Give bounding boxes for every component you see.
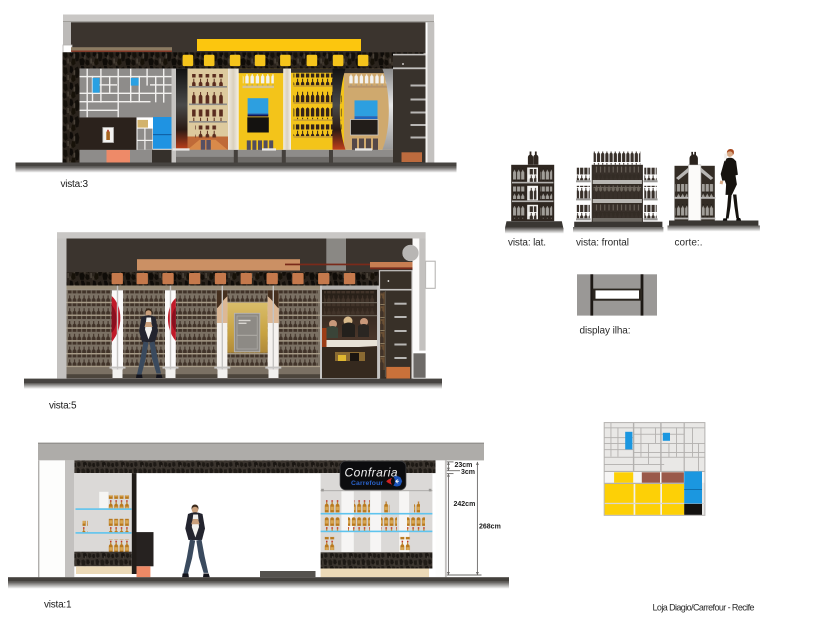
svg-text:vista:3: vista:3: [61, 179, 89, 190]
svg-text:3cm: 3cm: [461, 469, 475, 476]
svg-text:vista: lat.: vista: lat.: [508, 238, 546, 249]
svg-text:corte:.: corte:.: [675, 238, 703, 249]
svg-text:Loja Diagio/Carrefour - Recife: Loja Diagio/Carrefour - Recife: [653, 603, 755, 613]
svg-text:Carrefour: Carrefour: [351, 480, 383, 487]
svg-text:242cm: 242cm: [454, 501, 476, 508]
svg-text:268cm: 268cm: [479, 524, 501, 531]
svg-text:Confraria: Confraria: [345, 466, 398, 480]
svg-text:vista: frontal: vista: frontal: [576, 238, 629, 249]
svg-text:display ilha:: display ilha:: [580, 326, 631, 337]
svg-text:vista:1: vista:1: [44, 600, 72, 611]
svg-text:vista:5: vista:5: [49, 401, 77, 412]
